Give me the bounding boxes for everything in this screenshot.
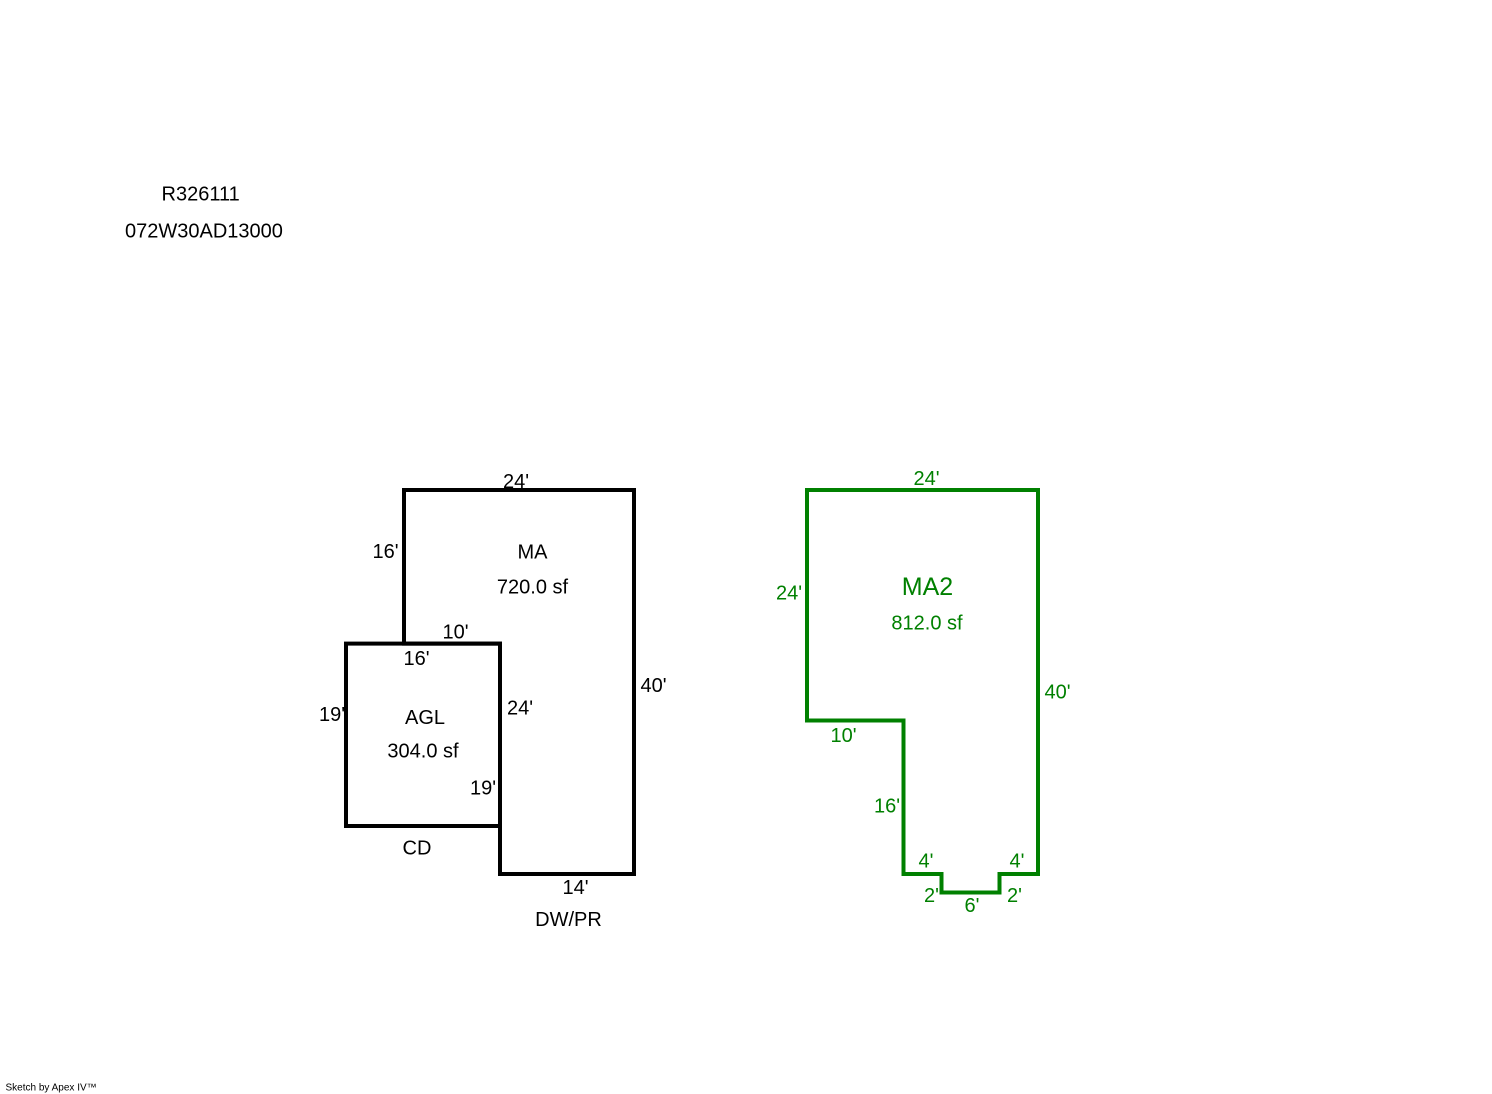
svg-text:Sketch by Apex IV™: Sketch by Apex IV™	[6, 1083, 97, 1094]
svg-text:24': 24'	[776, 583, 802, 605]
svg-text:24': 24'	[507, 698, 533, 720]
svg-text:10': 10'	[442, 622, 468, 644]
svg-text:40': 40'	[1044, 682, 1070, 704]
svg-text:072W30AD13000: 072W30AD13000	[125, 221, 283, 243]
svg-text:MA2: MA2	[902, 573, 953, 601]
svg-text:720.0 sf: 720.0 sf	[497, 577, 569, 599]
svg-text:40': 40'	[640, 675, 666, 697]
svg-text:DW/PR: DW/PR	[535, 909, 602, 931]
svg-text:AGL: AGL	[405, 707, 445, 729]
svg-text:19': 19'	[319, 704, 345, 726]
svg-text:812.0 sf: 812.0 sf	[891, 613, 963, 635]
svg-text:14': 14'	[562, 877, 588, 899]
svg-text:304.0 sf: 304.0 sf	[387, 741, 459, 763]
svg-text:2': 2'	[1007, 885, 1022, 907]
svg-text:16': 16'	[403, 648, 429, 670]
svg-text:16': 16'	[874, 796, 900, 818]
svg-text:6': 6'	[965, 895, 980, 917]
svg-text:24': 24'	[913, 468, 939, 490]
svg-text:24': 24'	[503, 471, 529, 493]
svg-text:4': 4'	[1010, 851, 1025, 873]
svg-text:10': 10'	[830, 725, 856, 747]
svg-text:19': 19'	[470, 778, 496, 800]
svg-text:4': 4'	[919, 851, 934, 873]
svg-text:16': 16'	[372, 541, 398, 563]
svg-text:CD: CD	[403, 838, 432, 860]
svg-text:2': 2'	[924, 885, 939, 907]
svg-text:MA: MA	[518, 542, 549, 564]
svg-text:R326111: R326111	[162, 184, 240, 206]
